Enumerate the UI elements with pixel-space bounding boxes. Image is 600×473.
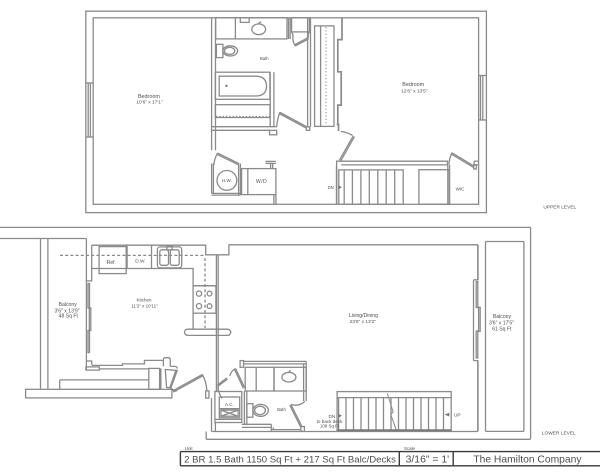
svg-text:2 BR 1.5 Bath 1150 Sq Ft + 21: 2 BR 1.5 Bath 1150 Sq Ft + 217 Sq Ft Bal…	[184, 455, 396, 466]
svg-text:3'6" x 17'5": 3'6" x 17'5"	[489, 321, 514, 327]
svg-text:Unit: Unit	[185, 446, 194, 451]
svg-text:Balcony: Balcony	[493, 314, 512, 320]
svg-text:DN: DN	[328, 185, 334, 190]
svg-text:3/16" = 1': 3/16" = 1'	[406, 455, 450, 466]
svg-text:Balcony: Balcony	[59, 302, 78, 308]
svg-text:Living/Dining: Living/Dining	[349, 313, 378, 319]
svg-text:Bath: Bath	[260, 56, 269, 61]
svg-text:LOWER LEVEL: LOWER LEVEL	[542, 430, 576, 436]
svg-text:A.C.: A.C.	[225, 402, 234, 407]
svg-text:Bath: Bath	[277, 407, 286, 412]
svg-text:UP: UP	[454, 412, 461, 418]
svg-text:12'6" x 13'5": 12'6" x 13'5"	[401, 88, 428, 94]
svg-text:Scale: Scale	[404, 446, 416, 451]
svg-text:Bedroom: Bedroom	[402, 82, 424, 88]
svg-text:108 Sq Ft: 108 Sq Ft	[320, 423, 340, 428]
svg-text:W/D: W/D	[256, 179, 267, 185]
svg-text:23'6" x 13'2": 23'6" x 13'2"	[350, 319, 377, 325]
svg-text:Ref.: Ref.	[107, 260, 116, 266]
svg-text:D.W.: D.W.	[135, 259, 145, 265]
svg-text:Bedroom: Bedroom	[138, 94, 160, 100]
svg-text:H.W.: H.W.	[222, 178, 232, 183]
svg-text:61 Sq Ft: 61 Sq Ft	[492, 327, 512, 333]
svg-text:WIC: WIC	[456, 187, 465, 192]
svg-text:Kitchen: Kitchen	[136, 298, 152, 303]
svg-text:48 Sq Ft: 48 Sq Ft	[59, 314, 79, 320]
svg-text:11'2" x 10'11": 11'2" x 10'11"	[131, 304, 158, 309]
svg-text:UPPER LEVEL: UPPER LEVEL	[543, 205, 576, 211]
svg-text:The Hamilton Company: The Hamilton Company	[473, 454, 582, 465]
svg-text:10'6" x 17'1": 10'6" x 17'1"	[136, 99, 163, 105]
